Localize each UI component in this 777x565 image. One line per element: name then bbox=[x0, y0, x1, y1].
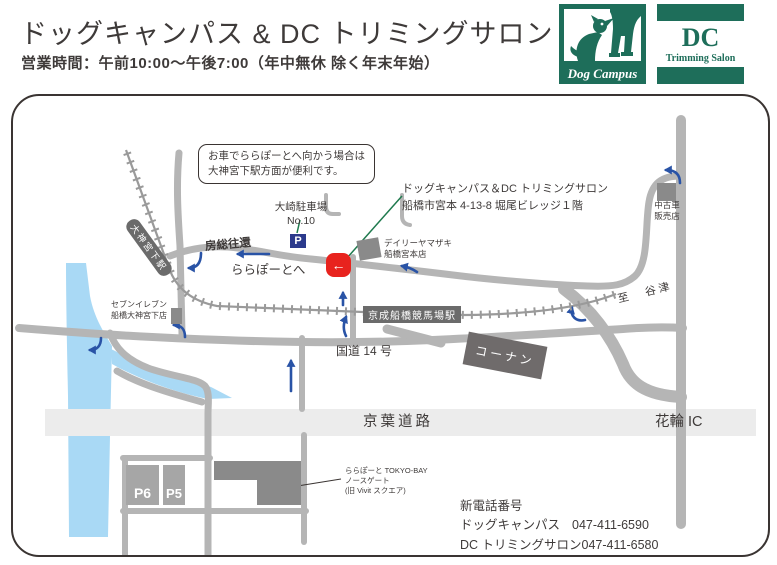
logo-bottom-bar bbox=[657, 69, 744, 84]
access-map: お車でららぽーとへ向かう場合は 大神宮下駅方面が便利です。 大崎駐車場 No.1… bbox=[11, 94, 770, 557]
turn-arrow-west-1 bbox=[189, 253, 201, 268]
page-title: ドッグキャンパス & DC トリミングサロン bbox=[20, 12, 554, 51]
contact-row: DC トリミングサロン 047-411-6580 bbox=[460, 536, 658, 555]
seven-eleven-building bbox=[171, 308, 182, 324]
keiyo-road-label: 京葉道路 bbox=[363, 410, 433, 431]
parking-p6: P6 bbox=[126, 465, 159, 505]
osaki-parking-label: 大崎駐車場 No.10 bbox=[258, 201, 344, 228]
contact-heading: 新電話番号 bbox=[460, 497, 658, 516]
route14-label: 国道 14 号 bbox=[336, 342, 392, 359]
lalaport-tokyo-bay-label: ららぽーと TOKYO-BAY ノースゲート (旧 Vivit スクエア) bbox=[345, 466, 428, 496]
to-lalaport-label: ららぽーとへ bbox=[231, 259, 305, 278]
shop-location-marker: ← bbox=[326, 253, 351, 277]
dog-campus-artwork bbox=[564, 9, 641, 61]
up-arrow-shop-street-2 bbox=[344, 317, 346, 336]
keisei-funabashi-keibajo-station: 京成船橋競馬場駅 bbox=[363, 306, 461, 323]
parking-p5: P5 bbox=[163, 465, 185, 505]
lalaport-building-2 bbox=[257, 461, 301, 505]
dog-silhouette-icon bbox=[564, 9, 641, 61]
dog-campus-label: Dog Campus bbox=[559, 63, 646, 84]
logo-top-bar bbox=[657, 4, 744, 19]
shop-address-callout: ドッグキャンパス＆DC トリミングサロン 船橋市宮本 4-13-8 堀尾ビレッジ… bbox=[402, 181, 608, 214]
daily-yamazaki-building bbox=[356, 237, 381, 261]
hanawa-ic-label: 花輪 IC bbox=[655, 410, 703, 431]
contact-row: ドッグキャンパス 047-411-6590 bbox=[460, 516, 658, 535]
used-car-shop-label: 中古車 販売店 bbox=[647, 200, 687, 222]
dog-campus-logo: Dog Campus bbox=[559, 4, 646, 84]
contact-block: 新電話番号 ドッグキャンパス 047-411-6590 DC トリミングサロン … bbox=[460, 497, 658, 555]
parking-icon: P bbox=[290, 234, 306, 248]
used-car-shop-building bbox=[657, 183, 676, 201]
road-left-vertical bbox=[177, 153, 182, 334]
dc-initials: DC bbox=[682, 25, 720, 51]
marker-left-arrow-icon: ← bbox=[332, 257, 346, 273]
note-balloon: お車でららぽーとへ向かう場合は 大神宮下駅方面が便利です。 bbox=[198, 144, 375, 184]
river bbox=[66, 263, 112, 537]
lalaport-building-1 bbox=[214, 461, 257, 480]
dc-label: Trimming Salon bbox=[666, 53, 736, 64]
dc-trimming-salon-logo: DC Trimming Salon bbox=[657, 4, 744, 84]
business-hours: 営業時間：午前10:00～午後7:00（年中無休 除く年末年始） bbox=[21, 52, 440, 73]
daily-yamazaki-label: デイリーヤマザキ 船橋宮本店 bbox=[384, 238, 452, 261]
seven-eleven-label: セブンイレブン 船橋大神宮下店 bbox=[107, 300, 171, 322]
